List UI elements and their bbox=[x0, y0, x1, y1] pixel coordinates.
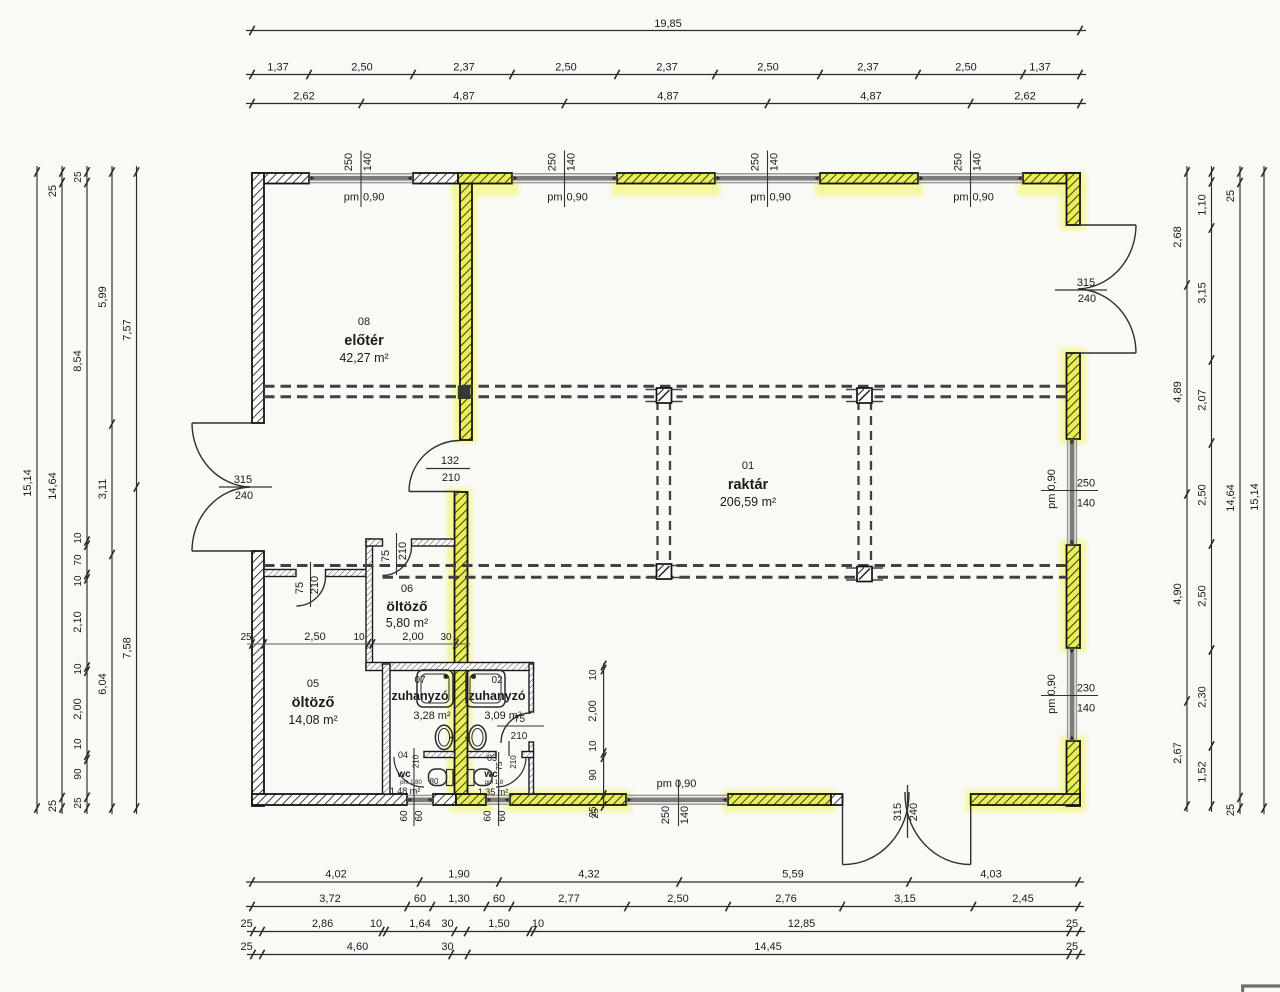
svg-text:25: 25 bbox=[1225, 804, 1237, 816]
svg-text:90: 90 bbox=[588, 769, 599, 781]
svg-text:1,52: 1,52 bbox=[1197, 761, 1209, 782]
svg-text:2,37: 2,37 bbox=[656, 62, 677, 74]
svg-text:14,64: 14,64 bbox=[47, 472, 59, 500]
svg-text:14,45: 14,45 bbox=[754, 941, 782, 953]
svg-text:2,50: 2,50 bbox=[955, 62, 976, 74]
svg-text:60: 60 bbox=[414, 893, 426, 905]
svg-text:0,90: 0,90 bbox=[770, 192, 791, 204]
svg-text:2,67: 2,67 bbox=[1172, 742, 1184, 763]
svg-text:240: 240 bbox=[235, 490, 253, 502]
svg-text:1,48 m²: 1,48 m² bbox=[390, 786, 421, 796]
svg-text:2,10: 2,10 bbox=[72, 611, 84, 632]
svg-text:240: 240 bbox=[908, 803, 920, 821]
svg-text:2,37: 2,37 bbox=[857, 62, 878, 74]
svg-text:2,68: 2,68 bbox=[1172, 226, 1184, 247]
svg-text:25: 25 bbox=[240, 918, 252, 930]
svg-text:5,99: 5,99 bbox=[97, 286, 109, 307]
svg-text:0,90: 0,90 bbox=[567, 192, 588, 204]
svg-text:250: 250 bbox=[660, 806, 672, 824]
svg-text:4,60: 4,60 bbox=[347, 941, 368, 953]
svg-text:2,77: 2,77 bbox=[558, 893, 579, 905]
svg-text:10: 10 bbox=[532, 918, 544, 930]
svg-text:210: 210 bbox=[442, 472, 460, 484]
svg-text:70: 70 bbox=[73, 554, 84, 566]
svg-text:10: 10 bbox=[588, 669, 599, 681]
svg-text:2,50: 2,50 bbox=[1197, 585, 1209, 606]
svg-text:250: 250 bbox=[343, 153, 355, 171]
svg-text:4,03: 4,03 bbox=[980, 869, 1001, 881]
svg-text:5,59: 5,59 bbox=[782, 869, 803, 881]
svg-text:pm: pm bbox=[344, 192, 359, 204]
svg-text:140: 140 bbox=[1077, 498, 1095, 510]
svg-text:3,15: 3,15 bbox=[894, 893, 915, 905]
svg-text:25: 25 bbox=[240, 941, 252, 953]
svg-text:2,62: 2,62 bbox=[1014, 91, 1035, 103]
svg-text:4,87: 4,87 bbox=[657, 91, 678, 103]
svg-text:60: 60 bbox=[493, 893, 505, 905]
svg-text:30: 30 bbox=[440, 632, 452, 643]
svg-text:2,37: 2,37 bbox=[453, 62, 474, 74]
svg-text:25: 25 bbox=[73, 171, 84, 183]
svg-text:0,90: 0,90 bbox=[363, 192, 384, 204]
svg-text:3,72: 3,72 bbox=[319, 893, 340, 905]
svg-text:250: 250 bbox=[547, 153, 559, 171]
svg-text:210: 210 bbox=[309, 576, 321, 594]
svg-text:19,85: 19,85 bbox=[654, 18, 682, 30]
svg-text:2,50: 2,50 bbox=[667, 893, 688, 905]
svg-text:wc: wc bbox=[483, 769, 498, 780]
svg-text:15,14: 15,14 bbox=[22, 469, 34, 497]
svg-text:pm: pm bbox=[547, 192, 562, 204]
svg-text:10: 10 bbox=[370, 918, 382, 930]
svg-text:1,90: 1,90 bbox=[448, 869, 469, 881]
svg-text:315: 315 bbox=[1077, 277, 1095, 289]
svg-text:2,50: 2,50 bbox=[555, 62, 576, 74]
svg-text:2,76: 2,76 bbox=[775, 893, 796, 905]
svg-text:wc: wc bbox=[396, 769, 411, 780]
svg-text:05: 05 bbox=[307, 678, 319, 690]
svg-text:2,00: 2,00 bbox=[587, 700, 599, 721]
svg-text:25: 25 bbox=[588, 806, 599, 818]
svg-text:2,45: 2,45 bbox=[1012, 893, 1033, 905]
svg-text:1,50: 1,50 bbox=[488, 918, 509, 930]
svg-text:06: 06 bbox=[401, 583, 413, 595]
svg-text:4,90: 4,90 bbox=[1172, 583, 1184, 604]
svg-text:10: 10 bbox=[73, 738, 84, 750]
svg-text:25: 25 bbox=[1225, 190, 1237, 202]
svg-text:42,27 m²: 42,27 m² bbox=[339, 351, 388, 365]
svg-text:210: 210 bbox=[397, 542, 409, 560]
svg-text:5,80 m²: 5,80 m² bbox=[386, 616, 428, 630]
svg-text:pm 0,90: pm 0,90 bbox=[657, 778, 697, 790]
svg-text:pm: pm bbox=[953, 192, 968, 204]
svg-text:2,50: 2,50 bbox=[757, 62, 778, 74]
svg-text:315: 315 bbox=[234, 474, 252, 486]
svg-text:60: 60 bbox=[399, 810, 410, 822]
svg-text:60: 60 bbox=[483, 810, 494, 822]
svg-text:230: 230 bbox=[1077, 683, 1095, 695]
svg-text:75: 75 bbox=[294, 582, 306, 594]
svg-text:4,32: 4,32 bbox=[578, 869, 599, 881]
svg-text:140: 140 bbox=[566, 153, 578, 171]
svg-text:3,09 m²: 3,09 m² bbox=[484, 710, 522, 722]
svg-text:1,37: 1,37 bbox=[267, 62, 288, 74]
svg-text:15,14: 15,14 bbox=[1249, 483, 1261, 511]
svg-text:04: 04 bbox=[398, 750, 408, 760]
svg-text:14,08 m²: 14,08 m² bbox=[288, 713, 337, 727]
svg-text:4,02: 4,02 bbox=[325, 869, 346, 881]
svg-text:140: 140 bbox=[362, 153, 374, 171]
svg-text:1,37: 1,37 bbox=[1029, 62, 1050, 74]
svg-text:30: 30 bbox=[441, 918, 453, 930]
svg-text:raktár: raktár bbox=[728, 477, 769, 493]
svg-text:315: 315 bbox=[892, 803, 904, 821]
svg-text:1,64: 1,64 bbox=[409, 918, 430, 930]
svg-text:60: 60 bbox=[414, 810, 425, 822]
svg-text:250: 250 bbox=[953, 153, 965, 171]
svg-text:10: 10 bbox=[588, 740, 599, 752]
svg-text:öltöző: öltöző bbox=[292, 695, 335, 711]
svg-text:pm: pm bbox=[750, 192, 765, 204]
svg-text:25: 25 bbox=[73, 797, 84, 809]
svg-text:öltöző: öltöző bbox=[386, 598, 427, 614]
svg-text:4,87: 4,87 bbox=[453, 91, 474, 103]
svg-text:30: 30 bbox=[441, 941, 453, 953]
svg-text:2,30: 2,30 bbox=[1197, 686, 1209, 707]
svg-text:2,50: 2,50 bbox=[351, 62, 372, 74]
svg-text:pm 0,90: pm 0,90 bbox=[1046, 469, 1058, 509]
svg-text:3,15: 3,15 bbox=[1197, 282, 1209, 303]
svg-text:140: 140 bbox=[1077, 703, 1095, 715]
svg-text:90: 90 bbox=[73, 768, 84, 780]
svg-text:0,90: 0,90 bbox=[973, 192, 994, 204]
svg-text:25: 25 bbox=[240, 632, 252, 643]
svg-text:zuhanyzó: zuhanyzó bbox=[392, 689, 449, 703]
svg-text:08: 08 bbox=[358, 316, 370, 328]
svg-text:pm 0,90: pm 0,90 bbox=[1046, 674, 1058, 714]
svg-text:7,58: 7,58 bbox=[122, 637, 134, 658]
svg-text:250: 250 bbox=[1077, 478, 1095, 490]
svg-text:előtér: előtér bbox=[344, 333, 384, 349]
svg-text:25: 25 bbox=[47, 185, 59, 197]
svg-text:25: 25 bbox=[1066, 918, 1078, 930]
svg-text:240: 240 bbox=[1078, 293, 1096, 305]
svg-text:250: 250 bbox=[750, 153, 762, 171]
svg-text:2,62: 2,62 bbox=[293, 91, 314, 103]
svg-text:10: 10 bbox=[73, 575, 84, 587]
svg-text:1,30: 1,30 bbox=[448, 893, 469, 905]
svg-text:7,57: 7,57 bbox=[122, 319, 134, 340]
svg-text:10: 10 bbox=[73, 663, 84, 675]
svg-text:3,11: 3,11 bbox=[97, 479, 109, 500]
svg-text:140: 140 bbox=[972, 153, 984, 171]
svg-text:10: 10 bbox=[73, 532, 84, 544]
svg-text:206,59 m²: 206,59 m² bbox=[720, 495, 776, 509]
svg-text:4,89: 4,89 bbox=[1172, 381, 1184, 402]
svg-text:01: 01 bbox=[742, 460, 754, 472]
svg-text:4,87: 4,87 bbox=[860, 91, 881, 103]
svg-text:03: 03 bbox=[487, 753, 497, 763]
svg-text:12,85: 12,85 bbox=[788, 918, 816, 930]
svg-text:1,10: 1,10 bbox=[1197, 194, 1209, 215]
svg-text:10: 10 bbox=[353, 632, 365, 643]
svg-text:2,00: 2,00 bbox=[72, 698, 84, 719]
svg-text:25: 25 bbox=[47, 800, 59, 812]
svg-text:2,00: 2,00 bbox=[402, 631, 423, 643]
svg-text:140: 140 bbox=[679, 806, 691, 824]
svg-text:2,50: 2,50 bbox=[1197, 484, 1209, 505]
svg-text:07: 07 bbox=[414, 675, 426, 686]
svg-text:210: 210 bbox=[412, 754, 421, 768]
svg-text:2,86: 2,86 bbox=[312, 918, 333, 930]
svg-text:6,04: 6,04 bbox=[97, 673, 109, 694]
svg-text:2,07: 2,07 bbox=[1197, 389, 1209, 410]
svg-text:60: 60 bbox=[497, 810, 508, 822]
svg-text:2,50: 2,50 bbox=[304, 631, 325, 643]
svg-text:210: 210 bbox=[509, 755, 518, 769]
svg-text:210: 210 bbox=[511, 731, 528, 742]
svg-text:14,64: 14,64 bbox=[1225, 484, 1237, 512]
svg-text:140: 140 bbox=[769, 153, 781, 171]
svg-text:3,28 m²: 3,28 m² bbox=[413, 710, 451, 722]
svg-text:zuhanyzó: zuhanyzó bbox=[469, 689, 526, 703]
svg-text:8,54: 8,54 bbox=[72, 350, 84, 371]
svg-text:25: 25 bbox=[1066, 941, 1078, 953]
svg-text:75: 75 bbox=[380, 550, 392, 562]
svg-text:132: 132 bbox=[441, 455, 459, 467]
svg-text:1,35 m²: 1,35 m² bbox=[478, 787, 509, 797]
